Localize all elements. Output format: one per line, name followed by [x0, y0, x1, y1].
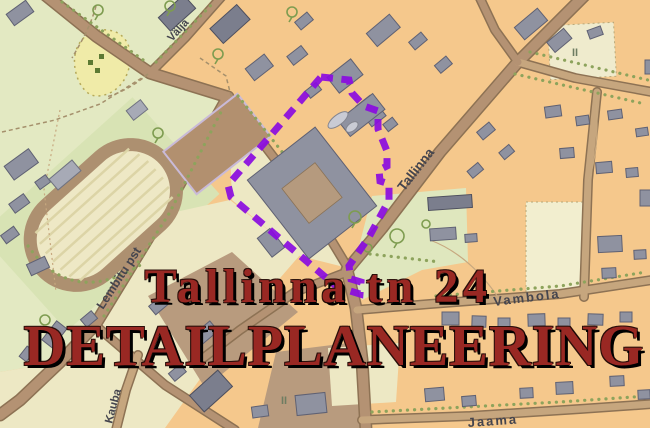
map-screenshot: Välja Tallinna Lembitu pst Kauba Vambola…	[0, 0, 650, 428]
map-mark: II	[281, 395, 287, 407]
overlay-title-line1: Tallinna tn 24	[145, 263, 492, 311]
street-label-jaama: Jaama	[467, 412, 518, 428]
map-mark: II	[572, 47, 578, 59]
overlay-title-line2: DETAILPLANEERING	[24, 317, 645, 375]
